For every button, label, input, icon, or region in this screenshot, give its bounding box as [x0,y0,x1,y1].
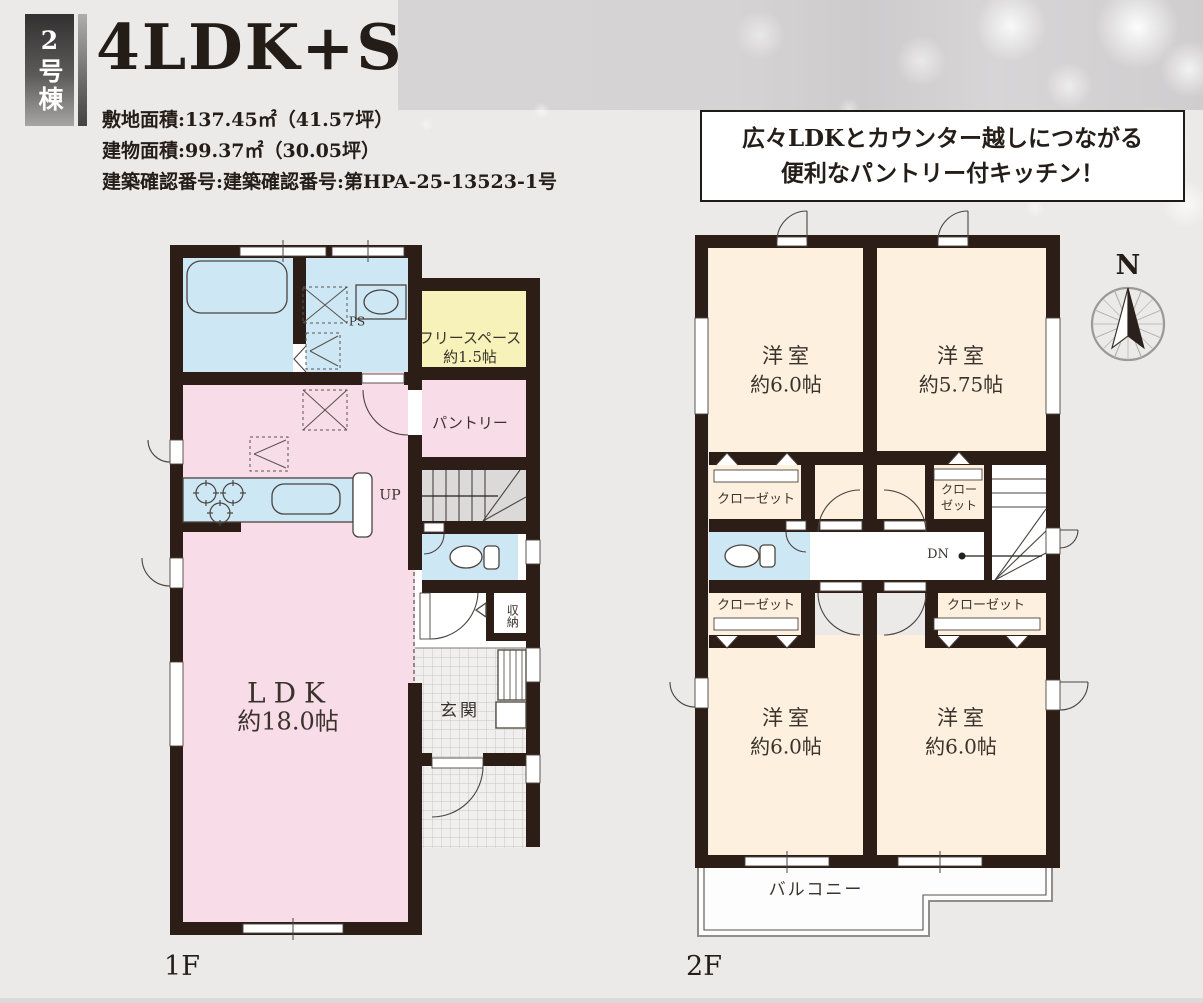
closet-bottom-left-label: クローゼット [717,599,795,613]
closet-bottom-right-label: クローゼット [947,599,1025,613]
closet-top-left-label: クローゼット [717,493,795,507]
pantry-label: パントリー [432,416,508,432]
entrance-label: 玄関 [440,703,480,721]
toilet-2f-icon [725,545,775,567]
bottom-edge-strip [0,998,1203,1003]
bedroom3-size: 約6.0帖 [750,737,822,758]
ldk-size: 約18.0帖 [237,709,338,734]
floor2-label: 2F [686,953,722,981]
floorplan-flyer: 2号棟 4LDK+S 敷地面積:137.45㎡（41.57坪） 建物面積:99.… [0,0,1203,1003]
small-closet-line2: ゼット [941,500,977,513]
pipe-space-label: PS [349,316,365,329]
bedroom1-size: 約6.0帖 [750,375,822,396]
free-space-size: 約1.5帖 [443,350,497,366]
bedroom4-name: 洋室 [937,707,989,729]
free-space-label: フリースペース [419,331,521,347]
ldk-name: LDK [247,678,333,707]
bedroom4-size: 約6.0帖 [925,737,997,758]
north-compass-icon [1092,288,1164,360]
compass-north-label: N [1116,252,1141,280]
storage-label: 収納 [506,604,519,628]
stairs-down-label: DN [927,548,949,562]
floorplan-drawing [0,0,1203,1003]
bedroom1-name: 洋室 [762,345,814,367]
bedroom3-name: 洋室 [762,707,814,729]
stairs-up-label: UP [379,489,400,504]
bedroom2-name: 洋室 [937,345,989,367]
balcony [698,868,1052,936]
bedroom2-size: 約5.75帖 [919,375,1004,396]
floor2-plan [670,211,1088,936]
floor1-label: 1F [164,953,200,981]
balcony-label: バルコニー [769,882,864,900]
small-closet-line1: クロー [941,484,977,497]
